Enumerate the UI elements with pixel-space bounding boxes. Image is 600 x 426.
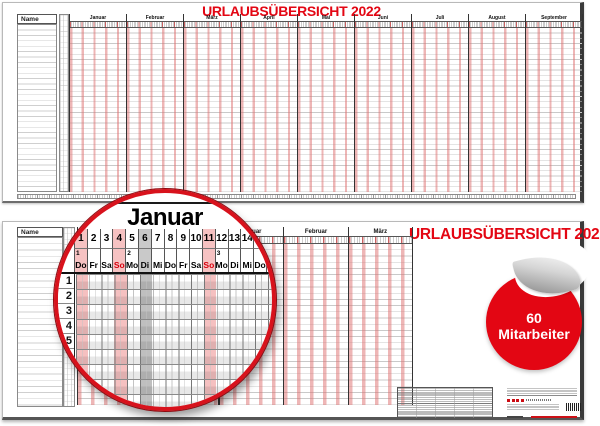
month-section: April: [240, 14, 297, 192]
month-label: März: [184, 14, 240, 22]
inset-week-number: [189, 249, 202, 258]
month-day-grid: [241, 28, 297, 192]
inset-row-number: 6: [58, 349, 74, 364]
inset-week-number: 1: [74, 249, 87, 258]
month-section: Januar: [69, 14, 126, 192]
legend-info-block: [503, 388, 581, 418]
inset-weekday: Mi: [151, 258, 164, 272]
imprint-text-lines: [507, 404, 559, 411]
employee-count: 60: [526, 311, 542, 326]
top-months-strip: JanuarFebruarMärzAprilMaiJuniJuliAugustS…: [69, 14, 583, 192]
legend-red-square: [516, 399, 519, 402]
month-day-grid: [184, 28, 240, 192]
inset-week-number: [253, 249, 266, 258]
inset-day-number: 5: [125, 229, 138, 249]
color-legend: [507, 399, 552, 403]
inset-day-number: 14: [240, 229, 253, 249]
month-label: September: [526, 14, 582, 22]
inset-day-number: 4: [112, 229, 125, 249]
inset-day-number: 6: [138, 229, 151, 249]
inset-weekday: Mi: [240, 258, 253, 272]
month-day-grid: [298, 28, 354, 192]
inset-row-number: [58, 364, 74, 379]
employee-count-label: Mitarbeiter: [498, 326, 570, 342]
month-label: August: [469, 14, 525, 22]
month-label: Juni: [355, 14, 411, 22]
inset-week-number: [112, 249, 125, 258]
inset-grid: 123456: [58, 272, 272, 407]
inset-row-number: [58, 379, 74, 394]
month-section: Mai: [297, 14, 354, 192]
inset-day-number: 9: [176, 229, 189, 249]
inset-week-number: 3: [215, 249, 228, 258]
month-label: März: [349, 227, 412, 237]
inset-day-number: 10: [189, 229, 202, 249]
inset-day-number: 7: [151, 229, 164, 249]
inset-day-number-row: 12345678910111213141516: [74, 229, 276, 249]
inset-weekday: So: [112, 258, 125, 272]
month-label: Juli: [412, 14, 468, 22]
vacation-planner-product-image: URLAUBSÜBERSICHT 2022 Name JanuarFebruar…: [0, 0, 600, 426]
legend-caption-line: [526, 399, 552, 401]
month-label: April: [241, 14, 297, 22]
inset-row-number-column: 123456: [58, 274, 75, 407]
name-column-rows: [17, 24, 57, 192]
month-section: Juli: [411, 14, 468, 192]
inset-day-number: 12: [215, 229, 228, 249]
inset-day-number: 2: [87, 229, 100, 249]
month-section: März: [183, 14, 240, 192]
inset-weekday: Do: [253, 258, 266, 272]
imprint-footer-line: [507, 416, 523, 418]
month-day-grid: [349, 244, 412, 405]
inset-row-number: 3: [58, 304, 74, 319]
website-red-line: [531, 416, 577, 418]
month-section: Juni: [354, 14, 411, 192]
inset-weekday: Do: [74, 258, 87, 272]
inset-week-number: [228, 249, 241, 258]
inset-week-number: [100, 249, 113, 258]
inset-weekday: Fr: [87, 258, 100, 272]
employee-count-sticker: 60 Mitarbeiter: [482, 250, 588, 372]
name-column-header: Name: [17, 14, 57, 24]
inset-weekday: So: [202, 258, 215, 272]
barcode: [566, 403, 581, 411]
month-section: März: [348, 227, 413, 405]
inset-row-number: 2: [58, 289, 74, 304]
month-day-grid: [355, 28, 411, 192]
inset-day-number: 15: [253, 229, 266, 249]
inset-month-title: Januar: [58, 204, 272, 232]
inset-week-number: [151, 249, 164, 258]
inset-week-number-row: 123: [74, 249, 276, 258]
inset-week-number: [176, 249, 189, 258]
month-day-grid: [412, 28, 468, 192]
inset-weekday: Do: [164, 258, 177, 272]
inset-day-number: 1: [74, 229, 87, 249]
inset-weekday: Mo: [215, 258, 228, 272]
inset-row-number: 5: [58, 334, 74, 349]
school-holidays-table: [397, 387, 493, 419]
magnifier-inset-january: Januar 12345678910111213141516 123 DoFrS…: [54, 189, 276, 411]
name-column-header: Name: [17, 227, 63, 237]
day-number-band: [284, 237, 347, 244]
inset-gridlines: [76, 274, 272, 407]
carryover-column: [59, 14, 69, 192]
month-label: Januar: [70, 14, 126, 22]
month-section: August: [468, 14, 525, 192]
legend-red-square: [512, 399, 515, 402]
inset-day-number: 3: [100, 229, 113, 249]
inset-weekday: Di: [228, 258, 241, 272]
month-section: September: [525, 14, 583, 192]
inset-day-grid: [76, 274, 272, 407]
month-section: Februar: [283, 227, 347, 405]
inset-weekday: Fr: [176, 258, 189, 272]
inset-week-number: [87, 249, 100, 258]
inset-weekday-row: DoFrSaSoMoDiMiDoFrSaSoMoDiMiDoFrSa: [74, 258, 276, 272]
legend-text-lines: [507, 388, 577, 397]
month-day-grid: [469, 28, 525, 192]
inset-day-number: 11: [202, 229, 215, 249]
month-day-grid: [526, 28, 582, 192]
month-label: Februar: [284, 227, 347, 237]
inset-week-number: [202, 249, 215, 258]
inset-day-number: 13: [228, 229, 241, 249]
inset-row-number: [58, 394, 74, 409]
inset-week-number: [164, 249, 177, 258]
top-planner-board: URLAUBSÜBERSICHT 2022 Name JanuarFebruar…: [2, 2, 584, 203]
inset-weekday: Sa: [100, 258, 113, 272]
inset-week-number: 2: [125, 249, 138, 258]
inset-weekday: Sa: [189, 258, 202, 272]
inset-day-number: 8: [164, 229, 177, 249]
month-label: Mai: [298, 14, 354, 22]
legend-red-square: [507, 399, 510, 402]
day-number-band: [349, 237, 412, 244]
inset-row-number: 1: [58, 274, 74, 289]
inset-week-number: [240, 249, 253, 258]
inset-row-number: 4: [58, 319, 74, 334]
month-label: Februar: [127, 14, 183, 22]
month-day-grid: [127, 28, 183, 192]
legend-red-square: [521, 399, 524, 402]
inset-week-number: [138, 249, 151, 258]
month-day-grid: [284, 244, 347, 405]
month-section: Februar: [126, 14, 183, 192]
inset-weekday: Mo: [125, 258, 138, 272]
month-day-grid: [70, 28, 126, 192]
top-board-footer-scale: [17, 194, 576, 199]
inset-weekday: Di: [138, 258, 151, 272]
